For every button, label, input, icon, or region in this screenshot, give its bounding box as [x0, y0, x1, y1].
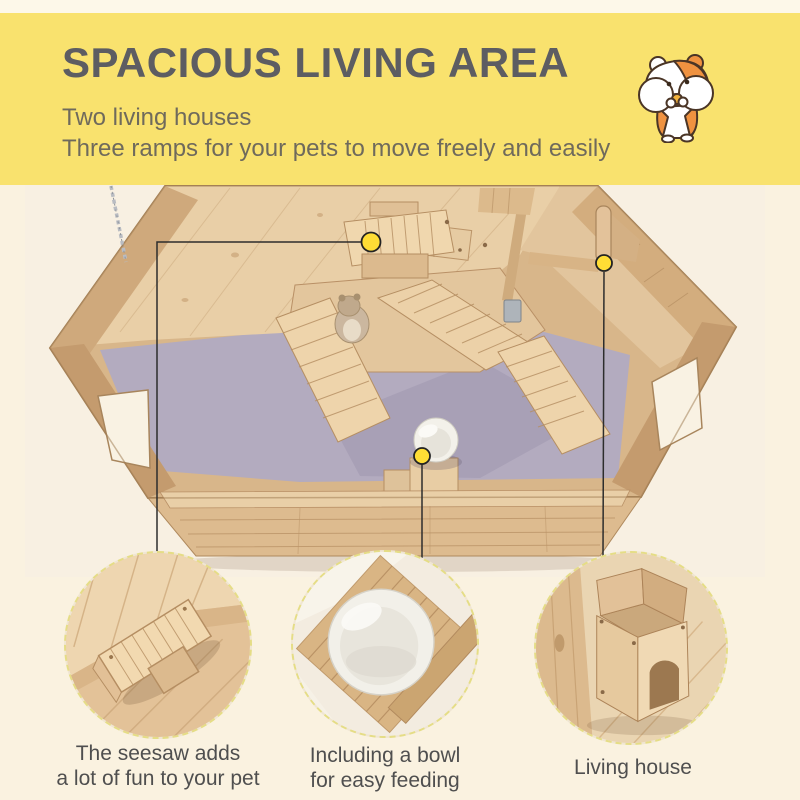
callout-dot-seesaw — [362, 233, 381, 252]
callout-line-house — [603, 272, 604, 556]
hamster-cage-photo — [0, 185, 800, 590]
header-banner: SPACIOUS LIVING AREA Two living houses T… — [0, 13, 800, 185]
detail-circle-seesaw — [64, 551, 252, 739]
bowl-closeup — [328, 589, 434, 695]
detail-circle-living-house — [534, 551, 728, 745]
detail-circle-bowl — [291, 550, 479, 738]
subtitle-line-1: Two living houses — [62, 103, 251, 133]
top-strip — [0, 0, 800, 13]
bowl-photo — [293, 552, 477, 736]
subtitle-line-2: Three ramps for your pets to move freely… — [62, 134, 610, 164]
caption-seesaw: The seesaw adds a lot of fun to your pet — [38, 741, 278, 791]
callout-dot-house — [596, 255, 612, 271]
seesaw-photo — [66, 553, 250, 737]
caption-living-house: Living house — [513, 755, 753, 780]
living-house-photo — [536, 553, 726, 743]
page-title: SPACIOUS LIVING AREA — [62, 39, 569, 87]
caption-bowl: Including a bowl for easy feeding — [265, 743, 505, 793]
hamster-icon — [632, 47, 724, 143]
callout-dot-bowl — [414, 448, 430, 464]
hinge — [504, 300, 521, 322]
